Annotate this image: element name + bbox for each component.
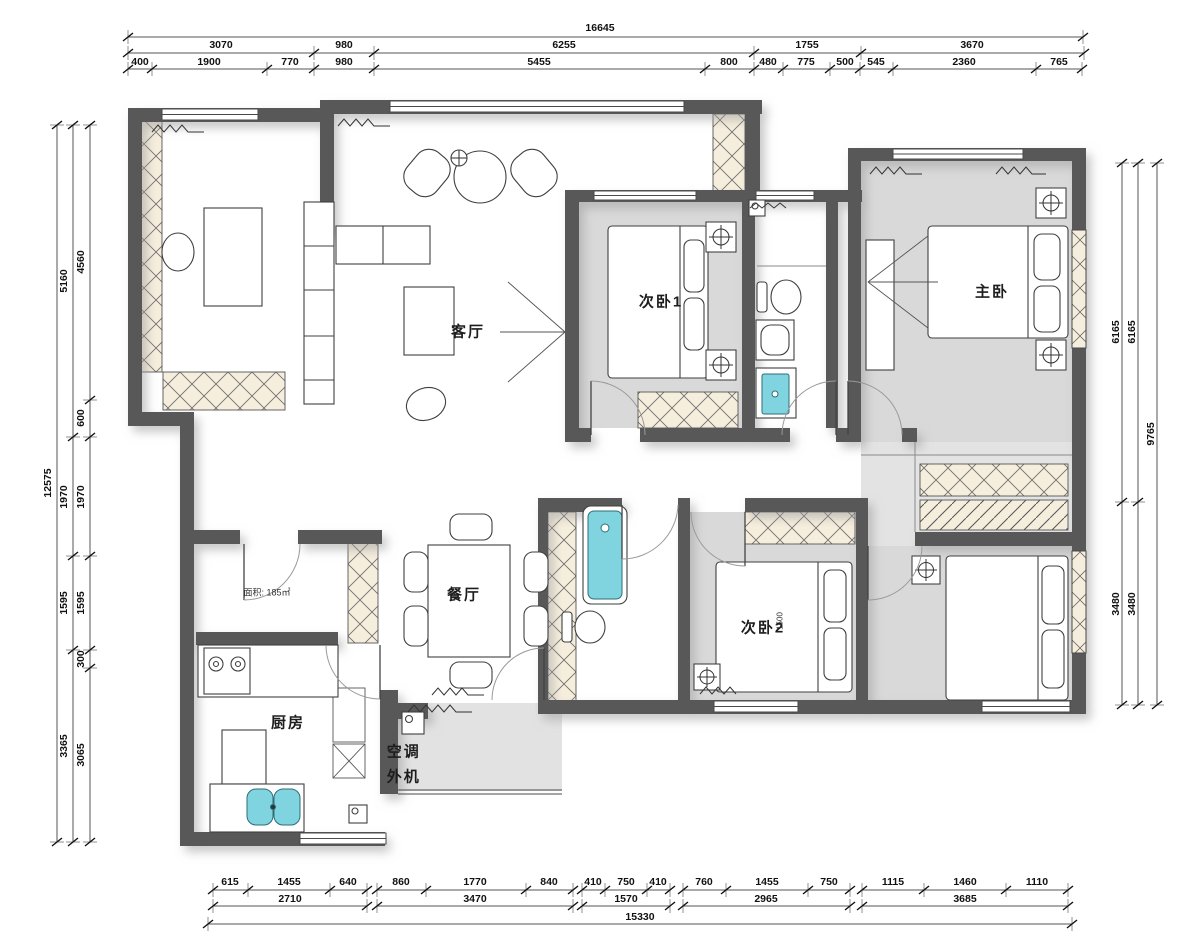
dim-label: 410: [584, 876, 602, 888]
dim-label: 765: [1050, 56, 1068, 68]
room-label-living: 客厅: [451, 321, 485, 342]
floor-plan-drawing: [0, 0, 1200, 949]
room-label-ac-unit: 空调外机: [387, 740, 422, 790]
dim-label: 3670: [960, 39, 983, 51]
dim-label: 6255: [552, 39, 575, 51]
dim-label: 2965: [754, 893, 777, 905]
room-label-dining: 餐厅: [447, 584, 481, 605]
floor-plan: 16645 3070 980 6255 1755 3670 400 1900 7…: [0, 0, 1200, 949]
dim-label: 3480: [1126, 592, 1138, 615]
dim-label: 3365: [58, 734, 70, 757]
dim-label: 1110: [1026, 876, 1048, 888]
dim-label: 6165: [1110, 320, 1122, 343]
dim-label: 1770: [463, 876, 486, 888]
dim-label: 3070: [209, 39, 232, 51]
dim-label: 400: [131, 56, 149, 68]
dim-label: 410: [649, 876, 667, 888]
dim-label: 1455: [277, 876, 300, 888]
dim-label: 800: [720, 56, 738, 68]
dim-label: 500: [836, 56, 854, 68]
dim-label: 860: [392, 876, 410, 888]
dim-label: 15330: [625, 911, 654, 923]
dim-label: 600: [75, 409, 87, 427]
dim-label: 1455: [755, 876, 778, 888]
dim-label: 1900: [197, 56, 220, 68]
dim-label: 300: [75, 650, 87, 668]
dim-label: 3480: [1110, 592, 1122, 615]
area-note: 面积: 185㎡: [243, 586, 290, 599]
dim-label: 1115: [882, 876, 904, 888]
dim-label: 9765: [1145, 422, 1157, 445]
dim-label: 6165: [1126, 320, 1138, 343]
dim-label: 750: [617, 876, 635, 888]
dim-label: 1970: [75, 485, 87, 508]
dim-label: 2710: [278, 893, 301, 905]
dim-label: 775: [797, 56, 815, 68]
dim-label: 1570: [614, 893, 637, 905]
dim-label: 3470: [463, 893, 486, 905]
dim-label: 4560: [75, 250, 87, 273]
dim-label: 3065: [75, 743, 87, 766]
dim-label: 16645: [585, 22, 614, 34]
dim-label: 1460: [953, 876, 976, 888]
dim-label: 545: [867, 56, 885, 68]
dim-label: 480: [759, 56, 777, 68]
room-label-bedroom1: 次卧1: [639, 291, 683, 312]
dim-label: 770: [281, 56, 299, 68]
dim-label: 12575: [42, 468, 54, 497]
room-label-master: 主卧: [975, 281, 1009, 302]
dim-label: 615: [221, 876, 239, 888]
dim-label: 1595: [58, 591, 70, 614]
dim-label: 760: [695, 876, 713, 888]
dim-label: 1755: [795, 39, 818, 51]
dim-label: 1595: [75, 591, 87, 614]
dim-label: 3685: [953, 893, 976, 905]
bed2-dim-note: 1500: [776, 612, 785, 630]
dim-label: 5160: [58, 269, 70, 292]
dim-label: 640: [339, 876, 357, 888]
dim-label: 2360: [952, 56, 975, 68]
dim-label: 750: [820, 876, 838, 888]
dim-label: 5455: [527, 56, 550, 68]
dim-label: 1970: [58, 485, 70, 508]
dim-label: 840: [540, 876, 558, 888]
dim-label: 980: [335, 39, 353, 51]
dim-label: 980: [335, 56, 353, 68]
room-label-kitchen: 厨房: [271, 712, 305, 733]
